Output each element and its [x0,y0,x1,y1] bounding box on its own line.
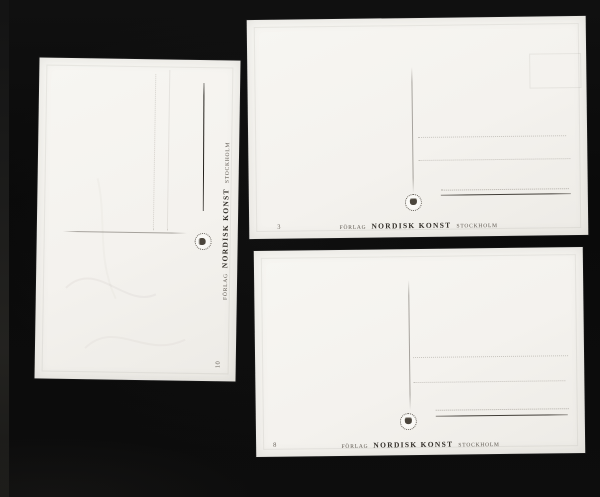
address-line [418,135,566,138]
publisher-city: STOCKHOLM [456,223,497,230]
photo-of-postcard-backs: FÖRLAG NORDISK KONST STOCKHOLM 10 FÖRLAG… [0,0,600,497]
address-divider-line [408,280,411,410]
card-number: 10 [215,361,222,369]
stamp-crest [405,418,412,424]
publisher-name: NORDISK KONST [373,440,453,450]
publisher-imprint: FÖRLAG NORDISK KONST STOCKHOLM [256,438,585,451]
embossed-border [261,254,578,450]
address-line-solid [203,83,205,211]
publisher-city: STOCKHOLM [458,442,499,449]
address-line [436,408,569,411]
round-publisher-stamp-icon [405,194,422,211]
card-number: 3 [277,224,281,231]
address-line [413,380,565,383]
round-publisher-stamp-icon [400,413,417,430]
address-divider-line [63,231,187,234]
publisher-prefix: FÖRLAG [223,273,229,300]
publisher-imprint: FÖRLAG NORDISK KONST STOCKHOLM [249,219,588,232]
publisher-city: STOCKHOLM [225,142,232,183]
publisher-prefix: FÖRLAG [340,225,367,231]
address-line [413,355,568,358]
address-divider-line [411,67,414,193]
publisher-imprint: FÖRLAG NORDISK KONST STOCKHOLM [218,60,232,381]
address-line-solid [436,414,568,417]
postcard-back-left: FÖRLAG NORDISK KONST STOCKHOLM 10 [34,57,240,381]
address-line [153,74,156,230]
background-edge-highlight [0,0,9,497]
round-publisher-stamp-icon [195,233,212,250]
postcard-back-top-right: FÖRLAG NORDISK KONST STOCKHOLM 3 [247,16,589,239]
address-line-solid [441,193,571,196]
stamp-box-outline [529,53,581,89]
address-line [167,70,171,230]
address-line [418,158,570,161]
publisher-name: NORDISK KONST [371,221,451,231]
stamp-crest [410,199,417,205]
background-glow [0,437,260,497]
address-line [441,188,569,191]
stamp-crest [200,238,206,245]
publisher-name: NORDISK KONST [220,188,230,268]
card-number: 8 [273,442,277,449]
postcard-back-bottom-right: FÖRLAG NORDISK KONST STOCKHOLM 8 [254,247,585,457]
publisher-prefix: FÖRLAG [342,444,369,450]
